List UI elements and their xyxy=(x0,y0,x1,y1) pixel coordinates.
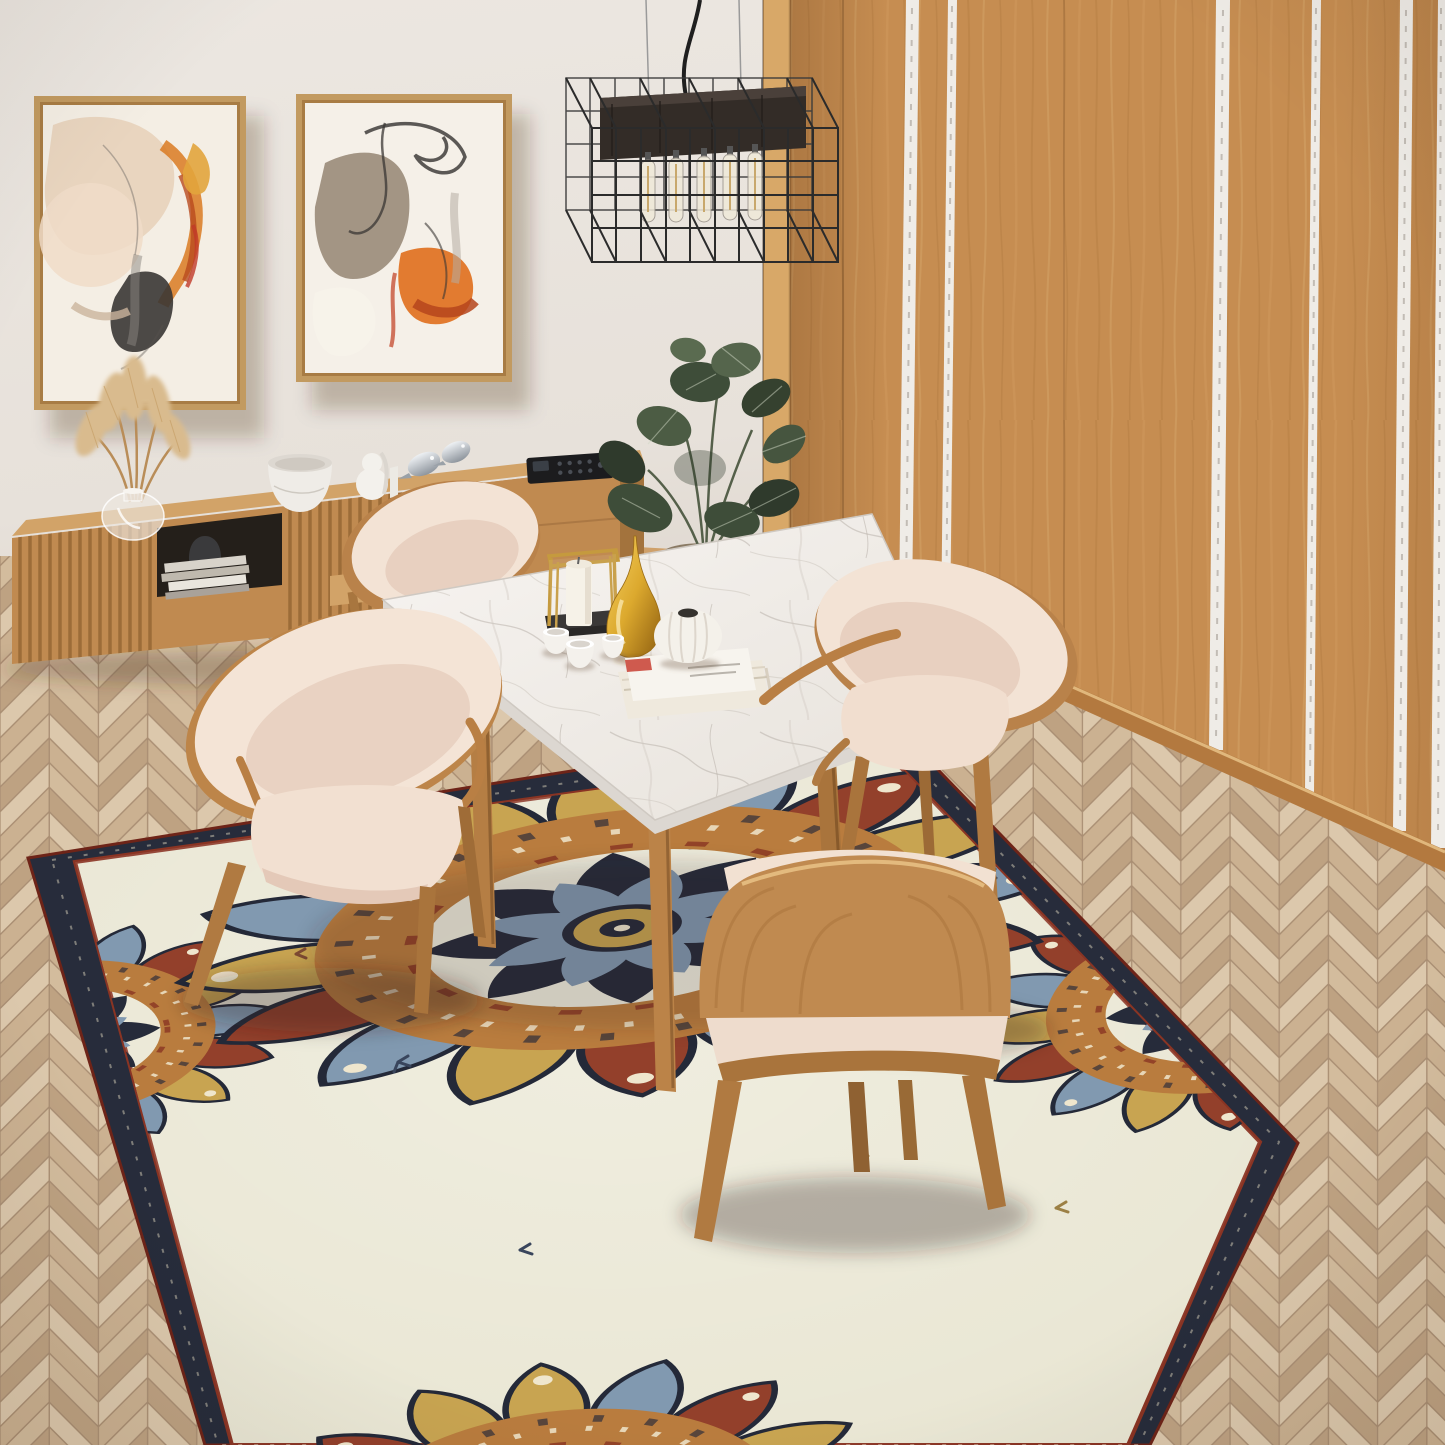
dining-room-photo: Sunlit modern dining room rendering: rec… xyxy=(0,0,1445,1445)
vignette xyxy=(0,0,1445,1445)
